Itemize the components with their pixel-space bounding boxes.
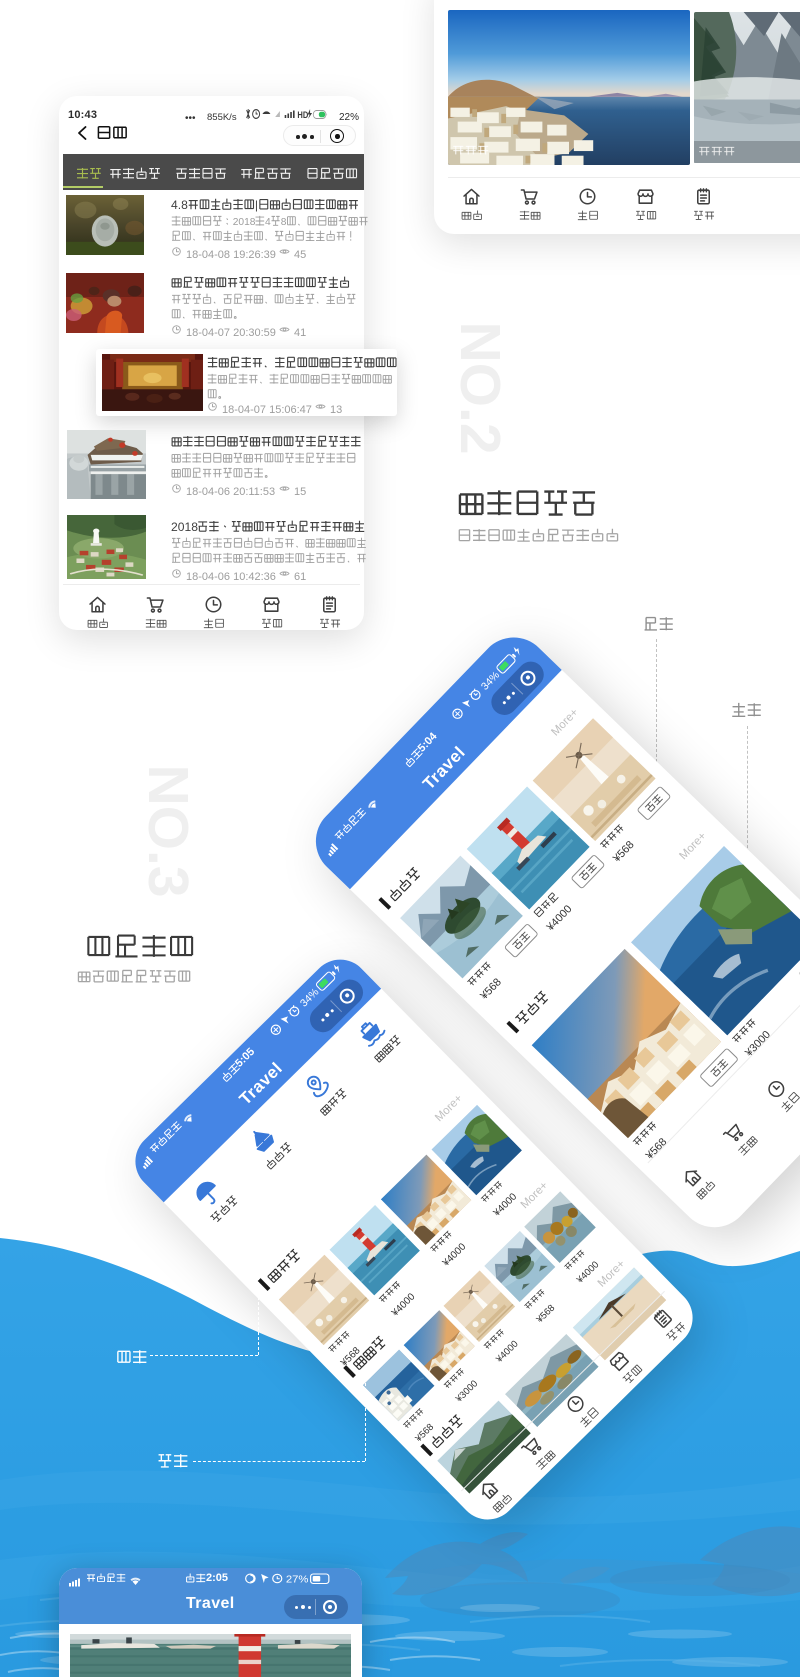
svg-text:8: 8: [281, 217, 287, 228]
svg-text:4: 4: [265, 217, 271, 228]
svg-text:HD: HD: [297, 109, 308, 120]
svg-text:|: |: [255, 198, 258, 212]
svg-text:2018: 2018: [233, 217, 256, 228]
svg-text:27%: 27%: [286, 1574, 309, 1585]
svg-text:4.8: 4.8: [171, 198, 188, 212]
svg-text:2018: 2018: [171, 520, 198, 534]
